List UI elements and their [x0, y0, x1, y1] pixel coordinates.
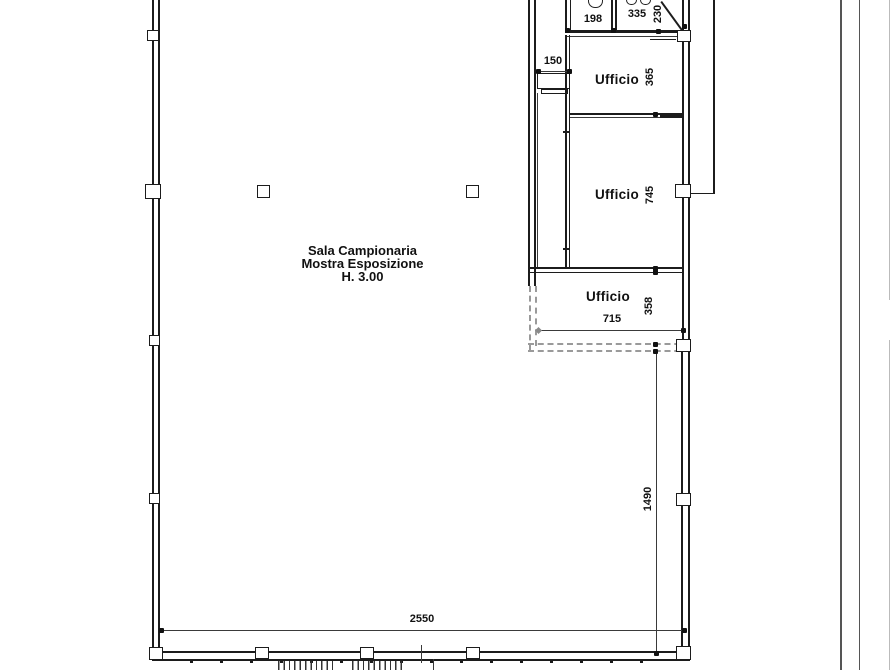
dimension-end-dot	[567, 69, 572, 74]
junction-dot	[653, 342, 658, 347]
dim-line-2550	[161, 630, 685, 631]
property-boundary-line	[859, 0, 861, 670]
column-marker	[466, 647, 480, 659]
corridor-door-tick	[563, 131, 570, 133]
dim-line-715	[537, 330, 684, 331]
door-lintel	[660, 114, 684, 118]
junction-dot	[653, 349, 658, 354]
dim-label-365: 365	[635, 65, 665, 89]
column-marker	[360, 647, 374, 659]
property-boundary-line	[840, 0, 842, 670]
office-left-wall-outer	[528, 0, 530, 286]
opening-tick	[421, 645, 422, 663]
hall-left-wall-inner	[158, 0, 160, 659]
junction-dot	[653, 112, 658, 117]
office-bottom-room-left-dashed-wall	[529, 286, 531, 350]
column-marker	[676, 646, 691, 660]
toilet-rooms-bottom-wall	[565, 30, 685, 34]
corridor-left-line	[537, 93, 538, 268]
page-edge-line	[889, 0, 890, 300]
office-bottom-room-left-dashed-wall-b	[535, 286, 537, 346]
office-bottom-dashed-wall-a	[528, 343, 690, 345]
dim-label-2550: 2550	[397, 613, 447, 625]
bottom-wall-tick-marks	[190, 660, 655, 663]
office-middle-room-bottom-wall-a	[528, 267, 684, 269]
dim-label-1490: 1490	[628, 485, 668, 513]
junction-dot	[682, 24, 687, 29]
column-marker	[149, 335, 160, 346]
office-bottom-dashed-wall-b	[528, 350, 690, 352]
dim-label-198: 198	[573, 13, 613, 25]
dim-line-150	[538, 71, 570, 72]
dim-label-358: 358	[634, 294, 664, 318]
column-marker	[149, 647, 163, 660]
toilet-room-left-wall-a	[565, 0, 567, 31]
toilet-rooms-bottom-line	[565, 36, 685, 37]
office-left-wall-inner	[534, 0, 536, 286]
dim-label-230: 230	[643, 2, 673, 26]
dimension-end-dot	[159, 628, 164, 633]
external-canopy-bottom-line	[690, 193, 715, 195]
junction-dot	[565, 28, 570, 33]
hall-left-wall-outer	[152, 0, 154, 659]
hall-label-line3: H. 3.00	[270, 271, 455, 284]
interior-column-marker	[466, 185, 479, 198]
column-marker	[147, 30, 159, 41]
dim-label-150: 150	[533, 55, 573, 67]
office-right-wall-inner	[682, 0, 684, 352]
column-marker	[145, 184, 161, 199]
office-right-wall-outer	[688, 0, 690, 352]
entry-door-bar	[541, 89, 568, 94]
column-marker	[255, 647, 269, 659]
column-marker	[676, 339, 691, 352]
floor-plan: Sala Campionaria Mostra Esposizione H. 3…	[0, 0, 893, 670]
hall-label: Sala Campionaria Mostra Esposizione H. 3…	[270, 245, 455, 283]
column-marker	[675, 184, 691, 198]
page-edge-line	[889, 340, 890, 670]
column-marker	[676, 493, 691, 506]
junction-dot	[653, 270, 658, 275]
dimension-end-dot	[654, 651, 659, 656]
office-middle-room-bottom-wall-b	[528, 272, 684, 274]
external-canopy-right-line	[713, 0, 715, 194]
pavement-line	[433, 659, 434, 670]
dimension-end-dot	[536, 69, 541, 74]
door-segment	[650, 39, 676, 41]
wc-fixture-icon	[588, 0, 603, 8]
pavement-hatching	[278, 661, 333, 670]
dim-label-745: 745	[635, 183, 665, 207]
dimension-end-dot	[682, 628, 687, 633]
interior-column-marker	[257, 185, 270, 198]
sink-fixture-icon	[626, 0, 637, 5]
column-marker	[677, 30, 691, 42]
toilet-room-left-wall-b	[570, 0, 572, 31]
pavement-hatching	[352, 661, 403, 670]
junction-dot	[611, 28, 616, 33]
dim-label-715: 715	[592, 313, 632, 325]
junction-dot	[656, 29, 661, 34]
corridor-door-tick	[563, 248, 570, 250]
dimension-end-dot	[681, 328, 686, 333]
column-marker	[149, 493, 160, 504]
